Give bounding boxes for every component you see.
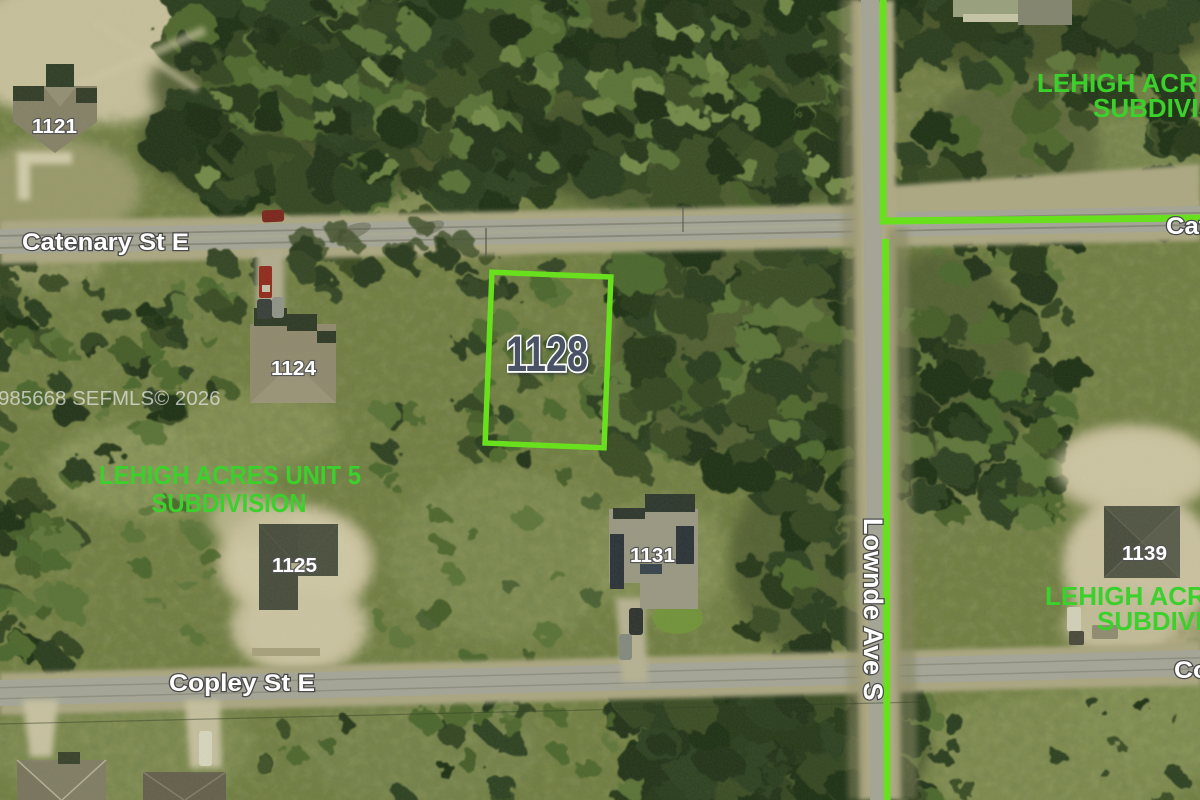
svg-text:1121: 1121 [32,116,77,138]
svg-text:SUBDIVISION: SUBDIVISION [152,488,307,518]
svg-text:1131: 1131 [630,545,675,567]
svg-text:1128: 1128 [506,326,588,382]
svg-text:Copley St E: Copley St E [169,670,315,697]
svg-text:1139: 1139 [1122,543,1167,565]
svg-text:Catenary St E: Catenary St E [1166,213,1200,240]
svg-text:985668 SEFMLS© 2026: 985668 SEFMLS© 2026 [0,387,221,410]
svg-text:1125: 1125 [272,555,317,577]
svg-text:Catenary St E: Catenary St E [22,229,189,256]
svg-text:Copley St E: Copley St E [1174,657,1200,684]
svg-text:LEHIGH ACRES UNIT 5: LEHIGH ACRES UNIT 5 [99,460,361,490]
svg-text:SUBDIVISION: SUBDIVISION [1097,606,1200,636]
svg-text:1124: 1124 [271,358,317,380]
svg-text:Lownde Ave S: Lownde Ave S [858,518,888,701]
svg-text:SUBDIVISION: SUBDIVISION [1093,93,1200,123]
